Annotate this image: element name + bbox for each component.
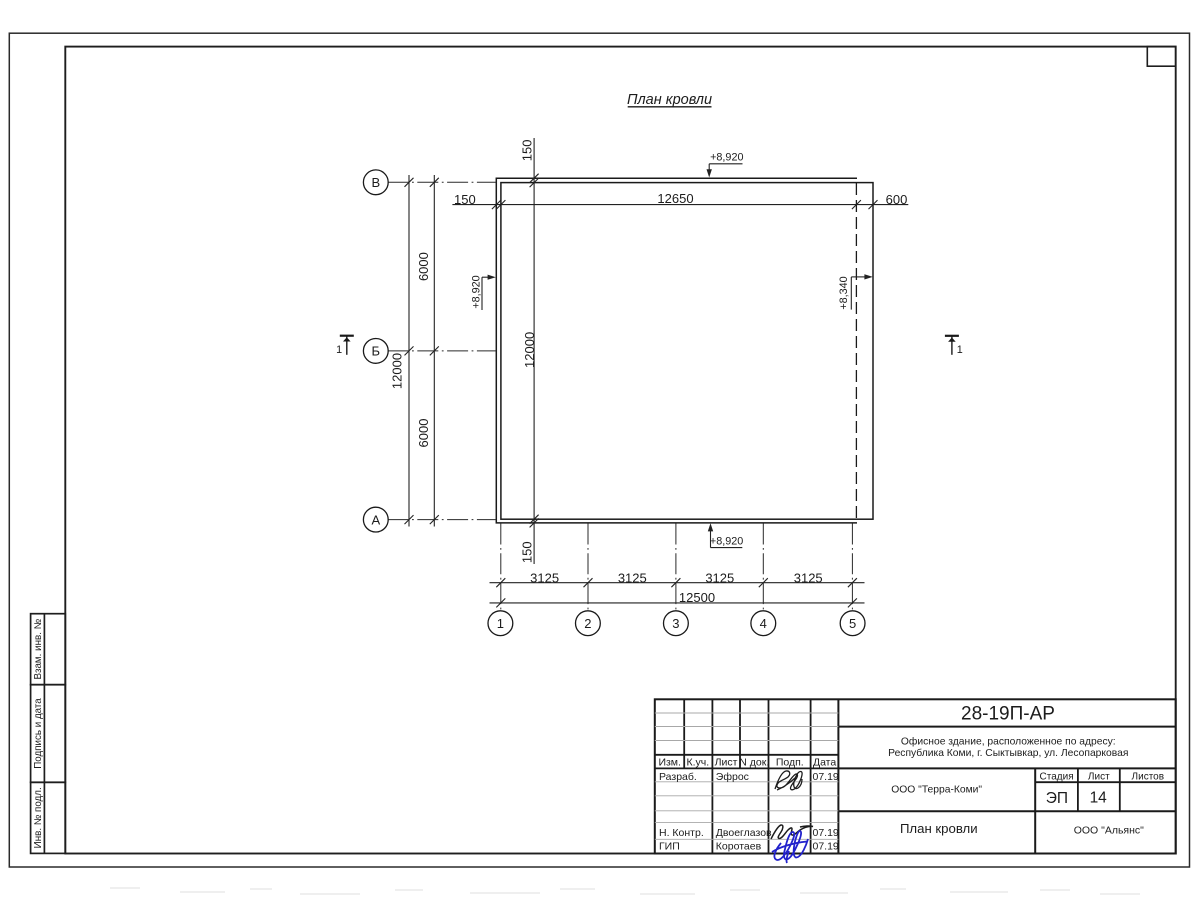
svg-text:3125: 3125 (618, 570, 647, 585)
svg-text:ООО "Терра-Коми": ООО "Терра-Коми" (891, 784, 982, 795)
svg-text:Лист: Лист (1088, 772, 1110, 783)
svg-text:Эфрос: Эфрос (716, 771, 749, 783)
svg-text:1: 1 (336, 344, 342, 356)
svg-text:Подпись и дата: Подпись и дата (33, 698, 44, 769)
svg-text:07.19: 07.19 (813, 827, 839, 839)
svg-text:3125: 3125 (705, 570, 734, 585)
svg-text:28-19П-АР: 28-19П-АР (961, 704, 1055, 725)
svg-text:6000: 6000 (416, 252, 431, 281)
svg-text:12000: 12000 (389, 353, 404, 389)
svg-text:План кровли: План кровли (900, 821, 978, 836)
svg-text:14: 14 (1090, 790, 1108, 807)
svg-text:А: А (371, 512, 380, 527)
svg-text:Б: Б (372, 344, 381, 359)
svg-text:Взам. инв. №: Взам. инв. № (33, 619, 44, 680)
svg-text:12650: 12650 (657, 191, 693, 206)
svg-text:3: 3 (672, 616, 679, 631)
svg-text:Дата: Дата (813, 757, 836, 769)
svg-text:Изм.: Изм. (658, 757, 681, 769)
svg-text:12500: 12500 (679, 590, 715, 605)
svg-text:Подп.: Подп. (776, 757, 804, 769)
svg-text:600: 600 (886, 192, 908, 207)
svg-text:150: 150 (520, 140, 535, 162)
svg-text:4: 4 (760, 616, 767, 631)
svg-text:Лист: Лист (715, 757, 738, 769)
svg-text:+8,920: +8,920 (470, 275, 482, 308)
svg-text:Республика Коми, г. Сыктывкар,: Республика Коми, г. Сыктывкар, ул. Лесоп… (888, 747, 1128, 759)
svg-text:5: 5 (849, 616, 856, 631)
svg-text:3125: 3125 (794, 570, 823, 585)
svg-text:Листов: Листов (1132, 772, 1165, 783)
svg-text:1: 1 (957, 344, 963, 356)
svg-text:2: 2 (584, 616, 591, 631)
svg-text:ЭП: ЭП (1046, 790, 1068, 807)
svg-text:План кровли: План кровли (627, 92, 712, 108)
svg-text:07.19: 07.19 (813, 771, 839, 783)
svg-text:6000: 6000 (416, 419, 431, 448)
svg-text:Офисное здание, расположенное: Офисное здание, расположенное по адресу: (901, 735, 1116, 747)
svg-text:3125: 3125 (530, 570, 559, 585)
svg-text:К.уч.: К.уч. (686, 757, 709, 769)
svg-text:N док.: N док. (739, 757, 769, 769)
svg-text:В: В (371, 175, 380, 190)
svg-text:Инв. № подл.: Инв. № подл. (33, 787, 44, 848)
svg-text:Двоеглазов: Двоеглазов (716, 827, 772, 839)
svg-text:Разраб.: Разраб. (659, 771, 697, 783)
svg-text:ГИП: ГИП (659, 841, 680, 853)
svg-text:+8,340: +8,340 (838, 276, 850, 309)
svg-text:+8,920: +8,920 (710, 151, 743, 163)
svg-text:Н. Контр.: Н. Контр. (659, 827, 704, 839)
svg-text:+8,920: +8,920 (710, 536, 743, 548)
svg-text:ООО "Альянс": ООО "Альянс" (1074, 824, 1144, 836)
svg-text:12000: 12000 (522, 332, 537, 368)
svg-text:1: 1 (497, 616, 504, 631)
svg-text:150: 150 (519, 541, 534, 563)
svg-text:150: 150 (454, 192, 476, 207)
svg-text:Коротаев: Коротаев (716, 841, 762, 853)
svg-text:07.19: 07.19 (813, 841, 839, 853)
svg-text:Стадия: Стадия (1040, 772, 1074, 783)
